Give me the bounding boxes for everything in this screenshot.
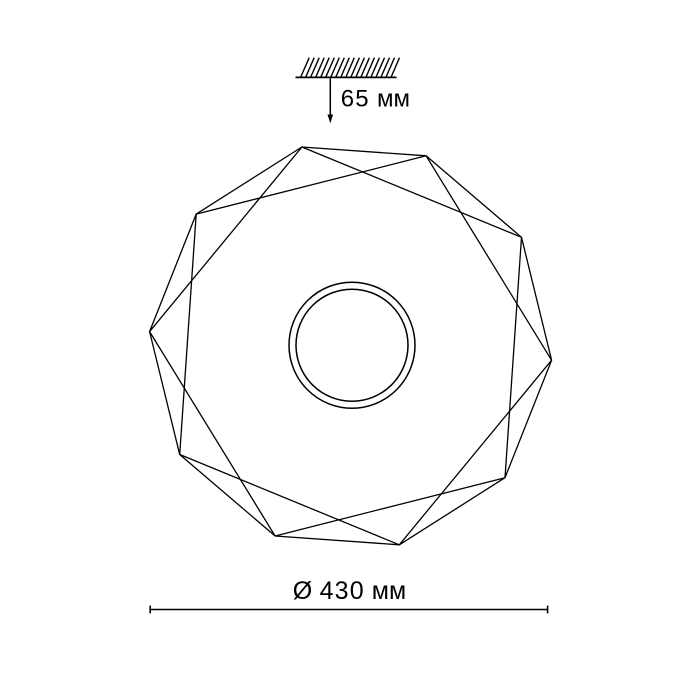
svg-text:430: 430: [320, 577, 365, 605]
svg-text:65: 65: [341, 85, 370, 112]
svg-text:Ø: Ø: [293, 577, 312, 605]
svg-text:мм: мм: [372, 577, 406, 605]
svg-text:мм: мм: [377, 85, 410, 112]
